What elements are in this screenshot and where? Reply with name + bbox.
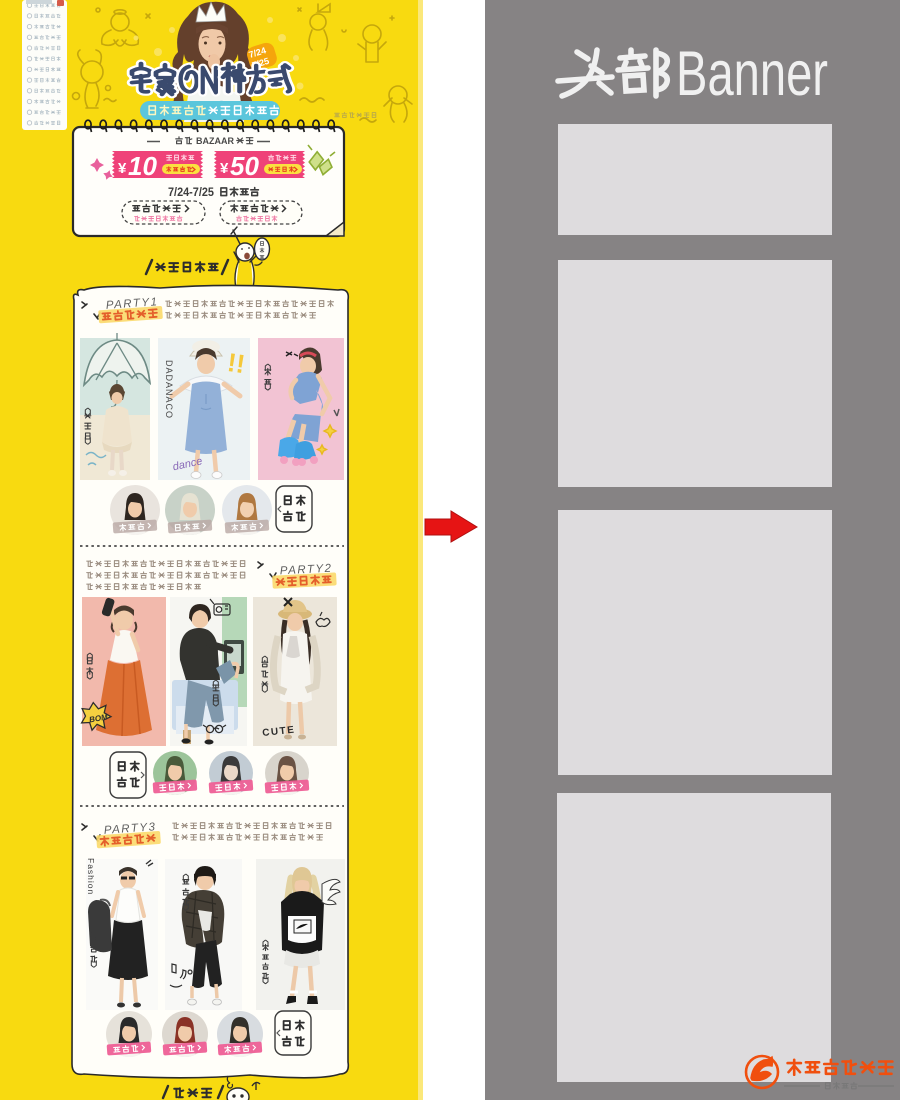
svg-text:Fashion: Fashion xyxy=(86,858,96,895)
svg-text:BAZAAR: BAZAAR xyxy=(196,136,234,146)
svg-text:50: 50 xyxy=(230,151,259,181)
svg-text:DADANACO: DADANACO xyxy=(164,360,174,419)
svg-text:7/24-7/25: 7/24-7/25 xyxy=(168,185,214,199)
svg-text:¥: ¥ xyxy=(118,160,127,177)
svg-text:¥: ¥ xyxy=(220,160,229,177)
svg-text:Banner: Banner xyxy=(676,39,828,109)
svg-text:10: 10 xyxy=(128,151,157,181)
